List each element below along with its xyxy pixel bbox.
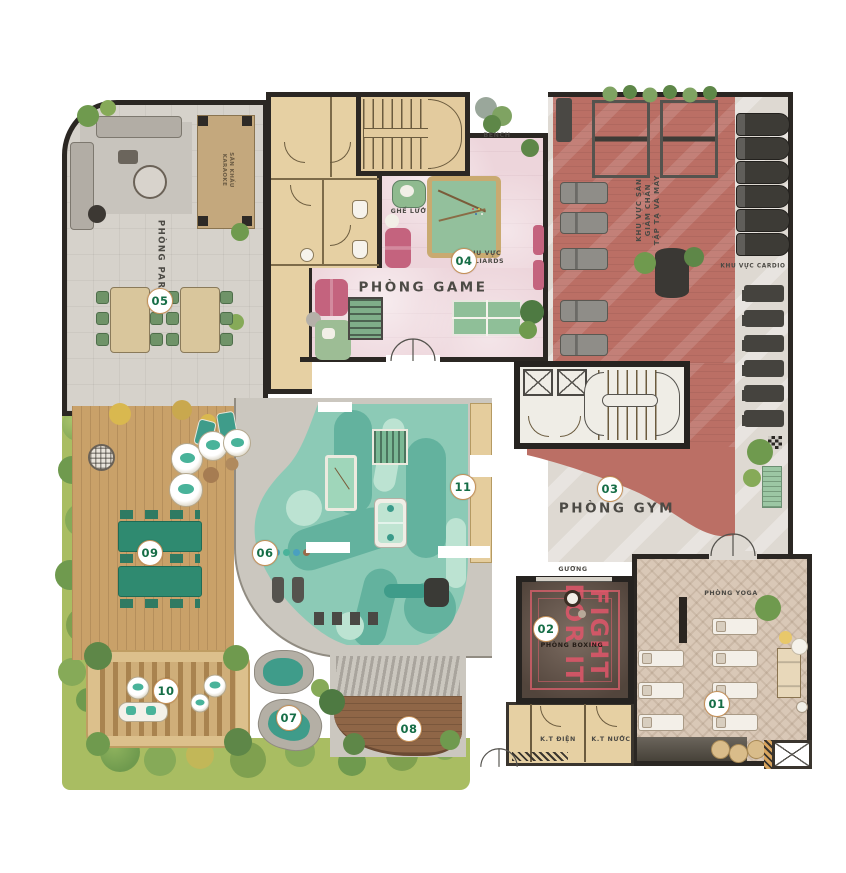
marker-01-label: 01: [708, 697, 725, 711]
side-table: [226, 458, 239, 471]
pillow: [322, 328, 335, 339]
chair: [166, 333, 179, 346]
kids-seat: [424, 578, 449, 607]
marker-10-label: 10: [157, 684, 174, 698]
marker-02-label: 02: [537, 622, 554, 636]
pingpong-centerline: [452, 317, 522, 319]
walkway: [438, 546, 490, 558]
yoga-mat: [638, 714, 684, 731]
party-cushion: [118, 150, 138, 164]
shrub: [643, 88, 658, 103]
chair-row: [120, 599, 200, 608]
marker-06[interactable]: 06: [252, 540, 278, 566]
air-hockey-knob: [387, 505, 394, 512]
palm: [343, 733, 365, 755]
inner-wall: [322, 180, 324, 266]
toilet: [352, 200, 368, 219]
pillow: [400, 185, 414, 197]
jacuzzi-water: [263, 658, 303, 686]
marker-11[interactable]: 11: [450, 474, 476, 500]
inner-wall: [271, 178, 379, 180]
plant: [747, 439, 773, 465]
pink-sofa: [315, 279, 348, 316]
walkway: [318, 402, 352, 412]
bush-yellow: [172, 400, 192, 420]
bush-yellow: [109, 403, 131, 425]
treadmill: [736, 209, 790, 232]
inner-wall: [584, 704, 586, 762]
kids-pool-table: [325, 455, 357, 511]
marker-07-label: 07: [280, 711, 297, 725]
gym-bench: [560, 334, 608, 356]
marker-01[interactable]: 01: [704, 691, 730, 717]
gym-bench: [560, 248, 608, 270]
tree: [223, 645, 249, 671]
room-gym-label: PHÒNG GYM: [559, 501, 675, 518]
pergola-chair: [191, 694, 210, 713]
room-yoga-label: PHÒNG YOGA: [704, 590, 758, 598]
marker-05-label: 05: [151, 294, 168, 308]
stair-landing: [363, 128, 431, 138]
marker-09-label: 09: [141, 546, 158, 560]
yoga-mat: [638, 650, 684, 667]
marker-09[interactable]: 09: [137, 540, 163, 566]
pouf: [385, 214, 399, 228]
ball: [711, 740, 730, 759]
shrub: [623, 85, 637, 99]
double-door: [710, 530, 756, 558]
door-gap: [470, 455, 492, 477]
utility-room: [772, 740, 812, 769]
wall-stub: [679, 597, 687, 643]
marker-04-label: 04: [455, 254, 472, 268]
papasan-chair: [169, 473, 203, 507]
weight-machine: [744, 310, 784, 327]
plant: [77, 105, 99, 127]
squat-rack: [592, 100, 650, 178]
pergola-chair: [204, 675, 227, 698]
green-sofa: [315, 320, 351, 360]
speaker: [242, 116, 252, 126]
kids-toy: [272, 577, 284, 603]
gym-red-curve: [527, 447, 737, 547]
shrub: [683, 88, 698, 103]
chair-row: [120, 510, 200, 519]
marker-02[interactable]: 02: [533, 616, 559, 642]
speaker: [198, 216, 208, 226]
tree: [224, 728, 252, 756]
reformer: [777, 648, 801, 698]
room-boxing-label: PHÒNG BOXING: [541, 642, 604, 650]
gym-zone-label: KHU VỰC SÀN GIẢM CHẤN TẬP TẠ VÀ MÁY: [635, 175, 661, 245]
mirror: [536, 577, 612, 582]
gym-bench: [560, 212, 608, 234]
cable-station: [556, 98, 572, 142]
core-stair-curve: [584, 372, 604, 436]
plant: [755, 595, 781, 621]
tree: [84, 642, 112, 670]
tech-nuoc-label: K.T NƯỚC: [591, 736, 630, 744]
weight-machine: [744, 285, 784, 302]
chair: [220, 312, 233, 325]
party-table: [110, 287, 150, 353]
squat-rack: [660, 100, 718, 178]
pink-chaise: [533, 260, 544, 290]
shrub: [603, 87, 618, 102]
palm: [440, 730, 460, 750]
chair: [96, 291, 109, 304]
zone08-hatch: [336, 656, 460, 698]
sink: [300, 248, 314, 262]
treadmill: [736, 233, 790, 256]
papasan-chair: [223, 429, 251, 457]
chair: [150, 333, 163, 346]
chair: [96, 312, 109, 325]
walkway: [306, 542, 350, 553]
bench-label: BENCH: [483, 132, 510, 140]
treadmill: [736, 137, 790, 160]
billiard-balls: [470, 206, 486, 218]
marker-03[interactable]: 03: [597, 476, 623, 502]
elevator-shaft: [523, 369, 553, 396]
marker-08-label: 08: [400, 722, 417, 736]
mirror-label: GƯƠNG: [558, 566, 587, 574]
marker-10[interactable]: 10: [153, 678, 179, 704]
pergola-chair: [127, 677, 150, 700]
plant: [634, 252, 656, 274]
party-sofa-top: [96, 116, 182, 138]
stool: [796, 701, 808, 713]
cardio-label: KHU VỰC CARDIO: [720, 263, 785, 270]
speed-bag: [578, 610, 586, 618]
pink-sofa-vert: [385, 228, 411, 268]
green-bench: [762, 466, 782, 508]
hatch-strip: [512, 752, 568, 761]
tech-dien-label: K.T ĐIỆN: [540, 736, 576, 744]
marker-08[interactable]: 08: [396, 716, 422, 742]
inner-wall: [271, 264, 379, 266]
chair: [220, 333, 233, 346]
weight-machine: [744, 410, 784, 427]
plant: [743, 469, 761, 487]
shrub: [663, 85, 677, 99]
hammock: [88, 444, 115, 471]
plant: [231, 223, 249, 241]
shrub: [483, 115, 501, 133]
treadmill: [736, 113, 790, 136]
inner-wall: [330, 97, 332, 177]
marker-05[interactable]: 05: [147, 288, 173, 314]
marker-06-label: 06: [256, 546, 273, 560]
marker-07[interactable]: 07: [276, 705, 302, 731]
kids-dumbbell-row: [314, 612, 386, 625]
double-door: [390, 336, 436, 362]
yoga-mat: [638, 682, 684, 699]
chair: [166, 312, 179, 325]
party-pouf: [88, 205, 106, 223]
pink-chaise: [533, 225, 544, 255]
kids-dot: [283, 549, 290, 556]
punching-bag: [564, 590, 581, 607]
lounge-pillow: [126, 706, 136, 715]
treadmill: [736, 185, 790, 208]
chair: [220, 291, 233, 304]
chair: [96, 333, 109, 346]
kids-dot: [293, 549, 300, 556]
gym-bench: [560, 182, 608, 204]
weight-machine: [744, 360, 784, 377]
tree: [144, 744, 176, 776]
room-game-label: PHÒNG GAME: [359, 280, 488, 297]
tree: [86, 732, 110, 756]
yoga-mat: [712, 650, 758, 667]
gym-red-strip: [688, 363, 735, 449]
speaker: [198, 116, 208, 126]
plant: [519, 321, 537, 339]
toilet: [352, 240, 368, 259]
kids-foosball: [372, 429, 408, 465]
plant: [521, 139, 539, 157]
corridor-lower: [266, 270, 312, 394]
plant: [520, 300, 544, 324]
marker-04[interactable]: 04: [451, 248, 477, 274]
yoga-mat: [712, 618, 758, 635]
lounge-pillow: [146, 706, 156, 715]
stage-label: SÂN KHẤU KARAOKE: [220, 152, 234, 188]
weight-machine: [744, 335, 784, 352]
plant: [100, 100, 116, 116]
ball: [729, 744, 748, 763]
elevator-shaft: [557, 369, 587, 396]
weight-machine: [744, 385, 784, 402]
tree: [58, 658, 86, 686]
marker-11-label: 11: [454, 480, 471, 494]
hatch-strip: [764, 740, 772, 769]
shrub: [703, 86, 717, 100]
kids-bench: [384, 584, 428, 598]
air-hockey-knob: [387, 534, 394, 541]
party-table: [180, 287, 220, 353]
marker-03-label: 03: [601, 482, 618, 496]
treadmill: [736, 161, 790, 184]
deck-table: [118, 566, 202, 597]
side-table: [203, 467, 219, 483]
gym-bench: [560, 300, 608, 322]
core-stair-rail: [602, 394, 658, 407]
lamp: [779, 631, 792, 644]
foosball-table: [348, 297, 383, 340]
palm: [319, 689, 345, 715]
lamp: [791, 638, 808, 655]
party-coffee-table: [133, 165, 167, 199]
plant: [684, 247, 704, 267]
floor-plan: SÂN KHẤU KARAOKE PHÒNG PARTY BENCH: [0, 0, 846, 873]
kids-toy: [292, 577, 304, 603]
